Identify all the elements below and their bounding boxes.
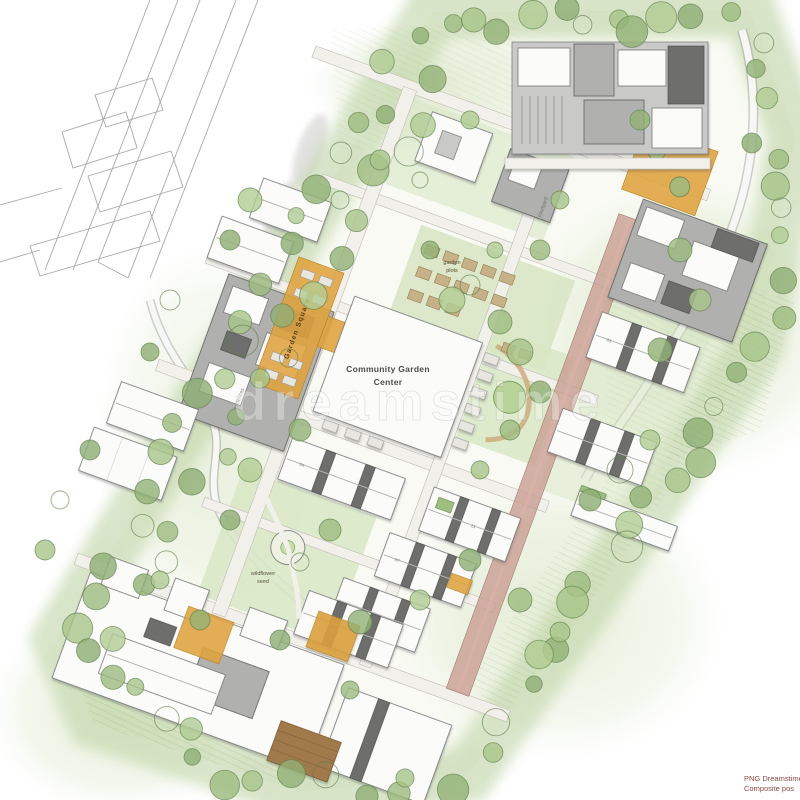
meadow-label-line1: wildflower	[250, 571, 275, 577]
garden-plots-label-line1: garden	[443, 260, 460, 266]
site-plan-canvas: residences courtyard Garden Square	[0, 0, 800, 800]
credit-line2: Composite pos	[744, 784, 794, 793]
credit-line1: PNG Dreamstime	[744, 774, 800, 783]
garden-plots-label-line2: plots	[446, 268, 458, 274]
meadow-label-line2: seed	[257, 579, 269, 585]
center-watermark: dreamstime	[233, 372, 606, 432]
site-plan-illustration: residences courtyard Garden Square	[0, 0, 800, 800]
north-bar-building	[505, 42, 710, 169]
